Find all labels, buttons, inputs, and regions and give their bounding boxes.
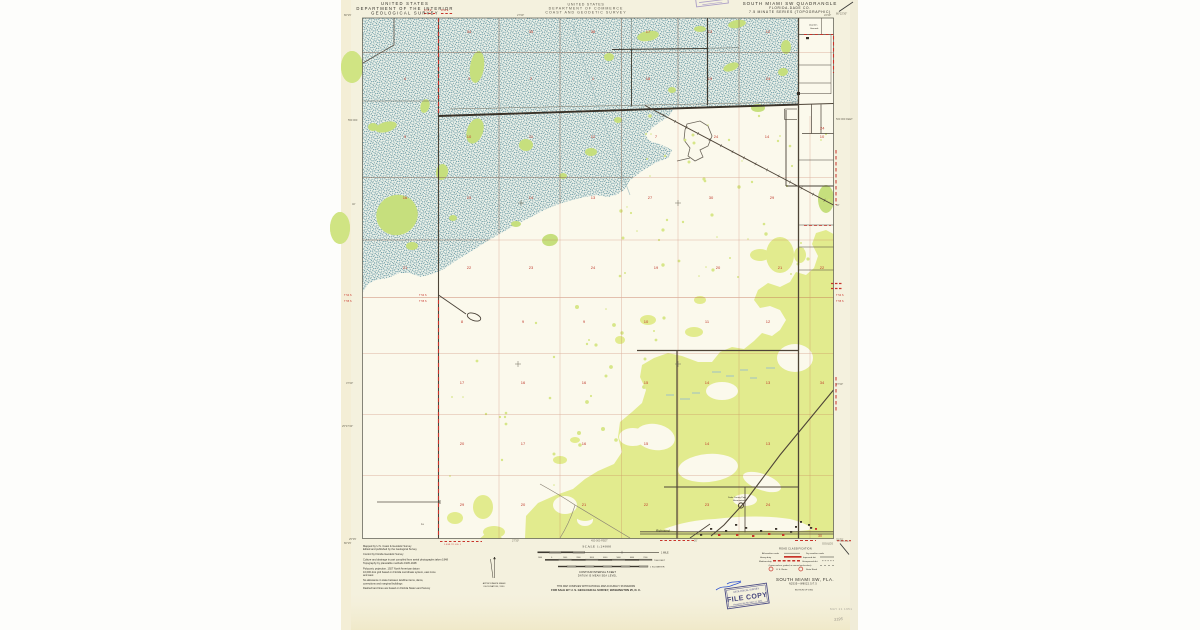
svg-text:37'30": 37'30" xyxy=(346,381,353,385)
svg-text:4000: 4000 xyxy=(603,557,607,559)
svg-text:30: 30 xyxy=(818,534,822,538)
svg-text:10,000-foot grid based on Flor: 10,000-foot grid based on Florida coordi… xyxy=(363,570,436,574)
svg-text:12: 12 xyxy=(766,29,771,34)
svg-text:550 000: 550 000 xyxy=(348,118,358,122)
svg-text:5000: 5000 xyxy=(616,557,620,559)
svg-text:24: 24 xyxy=(820,126,825,131)
svg-text:State Road: State Road xyxy=(806,568,818,571)
svg-text:21: 21 xyxy=(403,265,408,270)
svg-text:16: 16 xyxy=(582,380,587,385)
svg-text:FOR SALE BY U. S. GEOLOGICAL S: FOR SALE BY U. S. GEOLOGICAL SURVEY, WAS… xyxy=(551,588,641,592)
svg-text:T 55 S: T 55 S xyxy=(419,299,427,303)
svg-text:1 KILOMETER: 1 KILOMETER xyxy=(650,567,665,569)
svg-text:T 55 S: T 55 S xyxy=(836,299,844,303)
svg-text:SCALE 1:24000: SCALE 1:24000 xyxy=(582,545,611,549)
svg-text:20: 20 xyxy=(460,441,465,446)
svg-text:25°37´30″: 25°37´30″ xyxy=(840,540,850,543)
svg-text:Dry-weather roads: Dry-weather roads xyxy=(806,552,825,555)
svg-text:15: 15 xyxy=(644,380,649,385)
svg-text:10: 10 xyxy=(644,319,649,324)
svg-text:16: 16 xyxy=(582,441,587,446)
svg-text:All-weather roads: All-weather roads xyxy=(762,552,780,555)
svg-text:T 54 S: T 54 S xyxy=(344,293,352,297)
svg-text:Control by Florida Geodetic Su: Control by Florida Geodetic Survey xyxy=(363,552,404,556)
svg-text:19: 19 xyxy=(654,265,659,270)
svg-text:3195: 3195 xyxy=(834,616,844,622)
svg-text:17: 17 xyxy=(521,441,526,446)
svg-text:34: 34 xyxy=(467,29,472,34)
svg-text:20: 20 xyxy=(716,265,721,270)
svg-text:27'30": 27'30" xyxy=(512,539,519,543)
svg-text:COAST AND GEODETIC SURVEY: COAST AND GEODETIC SURVEY xyxy=(545,11,626,15)
svg-text:7.5 MINUTE SERIES (TOPOGRAPHIC: 7.5 MINUTE SERIES (TOPOGRAPHIC) xyxy=(749,10,831,14)
svg-text:14: 14 xyxy=(705,441,710,446)
svg-text:SOUTH MIAMI SW, FLA.: SOUTH MIAMI SW, FLA. xyxy=(776,577,834,582)
svg-text:Topography by planetable metho: Topography by planetable methods 1945-19… xyxy=(363,561,417,565)
svg-text:U. S. Route: U. S. Route xyxy=(776,568,788,571)
svg-text:36: 36 xyxy=(591,29,596,34)
svg-text:20': 20' xyxy=(694,539,698,543)
svg-text:1000: 1000 xyxy=(538,557,542,559)
svg-text:22: 22 xyxy=(644,502,649,507)
svg-text:GEOLOGICAL SURVEY: GEOLOGICAL SURVEY xyxy=(371,11,439,16)
svg-text:34: 34 xyxy=(820,380,825,385)
svg-text:(Loose-surface, graded, or nar: (Loose-surface, graded, or narrow hard-s… xyxy=(769,565,812,567)
svg-text:14: 14 xyxy=(529,195,534,200)
svg-text:1000: 1000 xyxy=(563,557,567,559)
svg-text:Culture and drainage in part c: Culture and drainage in part compiled fr… xyxy=(363,558,448,562)
svg-text:25°35': 25°35' xyxy=(349,537,357,541)
svg-text:Edited and published by the Ge: Edited and published by the Geological S… xyxy=(363,547,417,551)
svg-text:Medium-duty: Medium-duty xyxy=(759,560,773,563)
svg-text:22: 22 xyxy=(467,265,472,270)
svg-text:19: 19 xyxy=(708,76,713,81)
svg-text:24: 24 xyxy=(766,502,771,507)
svg-text:Grounds: Grounds xyxy=(810,27,819,30)
svg-text:Reservation: Reservation xyxy=(733,499,745,502)
svg-text:T 55 S: T 55 S xyxy=(344,299,352,303)
svg-text:27: 27 xyxy=(648,195,653,200)
svg-text:35: 35 xyxy=(529,29,534,34)
svg-text:30: 30 xyxy=(709,195,714,200)
svg-text:12: 12 xyxy=(591,134,596,139)
svg-text:T 54 S: T 54 S xyxy=(836,293,844,297)
svg-text:37'30": 37'30" xyxy=(836,382,843,386)
svg-text:Richmond: Richmond xyxy=(656,529,670,533)
svg-text:29: 29 xyxy=(770,195,775,200)
svg-text:6000: 6000 xyxy=(630,557,634,559)
svg-text:Improved dirt: Improved dirt xyxy=(803,556,816,559)
svg-text:Polyconic projection. 1927 No: Polyconic projection. 1927 North America… xyxy=(363,566,420,570)
svg-text:450 000 FEET: 450 000 FEET xyxy=(591,539,608,543)
svg-text:13: 13 xyxy=(766,380,771,385)
svg-text:27'30": 27'30" xyxy=(517,13,524,17)
svg-text:25°37'30": 25°37'30" xyxy=(342,424,353,428)
svg-text:80°22'30": 80°22'30" xyxy=(836,12,847,16)
svg-text:Heavy-duty: Heavy-duty xyxy=(760,556,772,559)
svg-text:15: 15 xyxy=(644,441,649,446)
svg-text:15: 15 xyxy=(467,195,472,200)
svg-text:7000 FEET: 7000 FEET xyxy=(654,560,666,562)
svg-text:22: 22 xyxy=(820,265,825,270)
svg-text:13: 13 xyxy=(708,29,713,34)
svg-text:21: 21 xyxy=(582,502,587,507)
svg-text:40': 40' xyxy=(352,202,356,206)
svg-text:and west: and west xyxy=(363,573,374,577)
svg-text:T 54 S: T 54 S xyxy=(419,293,427,297)
svg-text:N2535—W8022.5/7.5: N2535—W8022.5/7.5 xyxy=(789,583,817,586)
svg-text:DATUM IS MEAN SEA LEVEL: DATUM IS MEAN SEA LEVEL xyxy=(578,574,618,577)
svg-text:80°25': 80°25' xyxy=(344,541,352,545)
svg-text:Quarters: Quarters xyxy=(809,24,818,27)
svg-text:12: 12 xyxy=(766,319,771,324)
svg-text:GOULDS: GOULDS xyxy=(822,542,833,546)
svg-text:14: 14 xyxy=(765,134,770,139)
svg-text:18: 18 xyxy=(646,76,651,81)
svg-text:20: 20 xyxy=(521,502,526,507)
svg-text:10: 10 xyxy=(820,134,825,139)
svg-text:560 000 FEET: 560 000 FEET xyxy=(836,117,853,121)
svg-text:13: 13 xyxy=(766,441,771,446)
svg-text:7000: 7000 xyxy=(643,557,647,559)
svg-text:0: 0 xyxy=(551,557,552,559)
svg-text:1 MILE: 1 MILE xyxy=(661,552,669,555)
svg-text:ROAD CLASSIFICATION: ROAD CLASSIFICATION xyxy=(779,548,812,551)
svg-text:Unimproved dirt: Unimproved dirt xyxy=(802,560,818,563)
svg-text:Dade County Park: Dade County Park xyxy=(728,496,747,499)
svg-text:3000: 3000 xyxy=(590,557,594,559)
svg-text:MAY 21 1951: MAY 21 1951 xyxy=(830,607,852,611)
svg-text:21: 21 xyxy=(778,265,783,270)
svg-text:24: 24 xyxy=(591,265,596,270)
svg-text:13: 13 xyxy=(591,195,596,200)
svg-text:Dashed land lines are based on: Dashed land lines are based on Florida S… xyxy=(363,586,431,590)
svg-text:29: 29 xyxy=(460,502,465,507)
svg-text:16: 16 xyxy=(403,195,408,200)
svg-text:16: 16 xyxy=(521,380,526,385)
svg-text:23: 23 xyxy=(529,265,534,270)
svg-text:17: 17 xyxy=(646,29,651,34)
svg-text:No allowance in state between: No allowance in state between landline i… xyxy=(363,578,424,582)
svg-text:DECLINATION, 1950: DECLINATION, 1950 xyxy=(484,585,505,588)
svg-text:17: 17 xyxy=(460,380,465,385)
svg-text:40': 40' xyxy=(836,203,840,207)
svg-text:corrections and marginal build: corrections and marginal buildings xyxy=(363,581,403,585)
svg-text:EDITION OF 1950: EDITION OF 1950 xyxy=(795,590,814,592)
svg-text:CONTOUR INTERVAL 5 FEET: CONTOUR INTERVAL 5 FEET xyxy=(579,570,616,574)
svg-text:23: 23 xyxy=(705,502,710,507)
svg-text:1.4 MI. TO U.S. 1: 1.4 MI. TO U.S. 1 xyxy=(444,544,462,546)
svg-text:14: 14 xyxy=(705,380,710,385)
svg-text:APPROXIMATE MEAN: APPROXIMATE MEAN xyxy=(483,582,506,585)
svg-text:24: 24 xyxy=(766,76,771,81)
svg-text:80°25': 80°25' xyxy=(344,13,352,17)
svg-text:24: 24 xyxy=(714,134,719,139)
svg-text:2000: 2000 xyxy=(576,557,580,559)
svg-text:10: 10 xyxy=(467,134,472,139)
